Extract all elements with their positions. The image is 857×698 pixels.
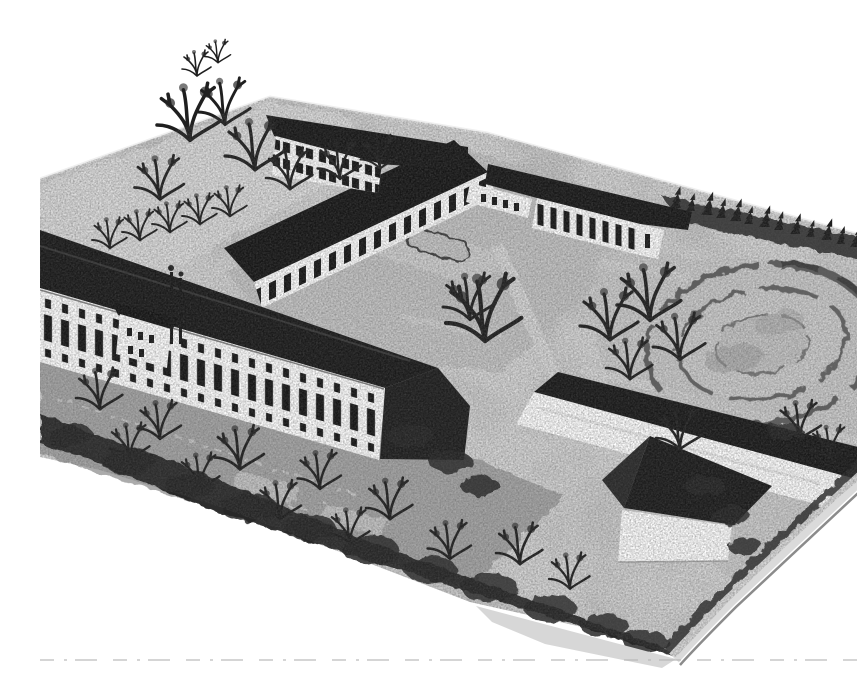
treetop-tuft [182, 50, 211, 76]
treetop-tuft [205, 39, 231, 62]
model-photograph: Bird's-eye view of an architectural scal… [40, 16, 857, 682]
model-photo-canvas: Bird's-eye view of an architectural scal… [40, 16, 857, 682]
halftone-grain [40, 16, 857, 682]
